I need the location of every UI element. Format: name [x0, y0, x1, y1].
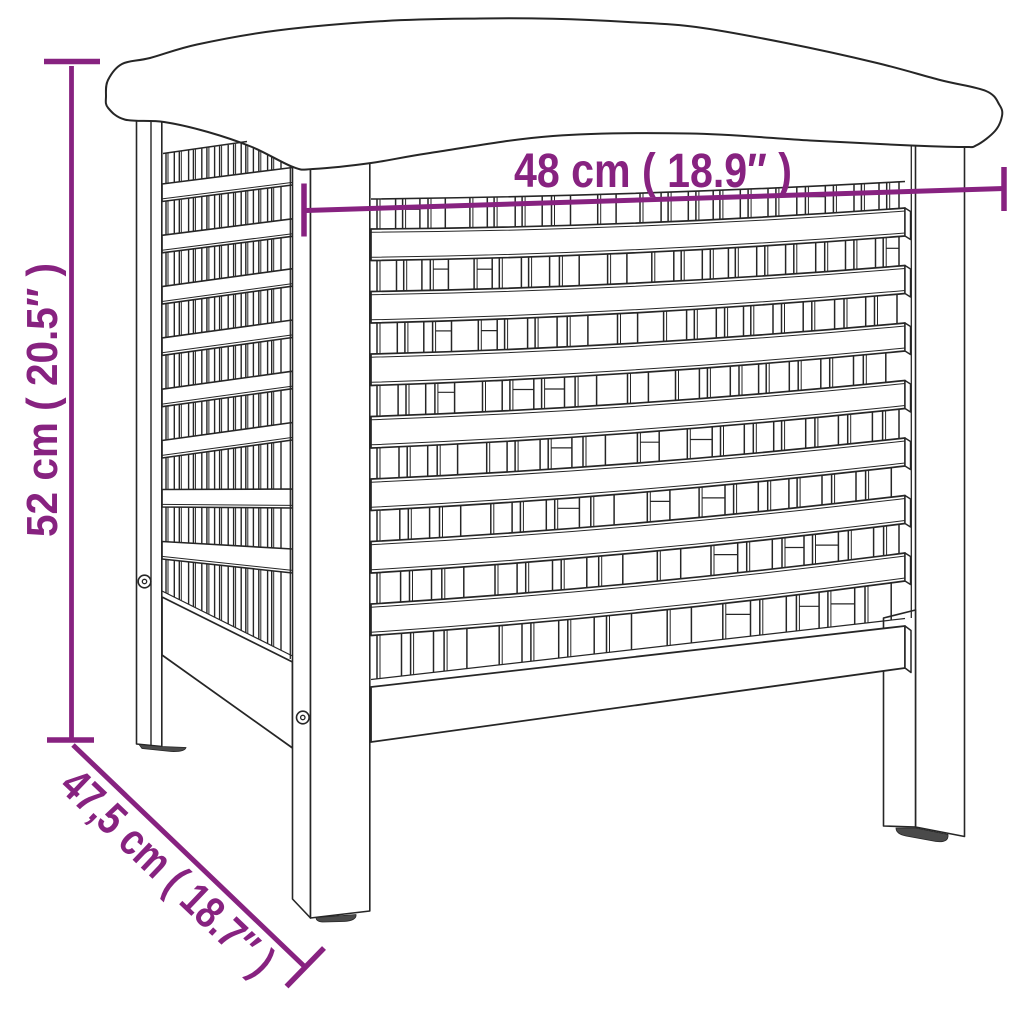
svg-text:52 cm ( 20.5″ ): 52 cm ( 20.5″ ) [18, 263, 67, 537]
svg-text:48 cm ( 18.9″ ): 48 cm ( 18.9″ ) [514, 145, 792, 198]
